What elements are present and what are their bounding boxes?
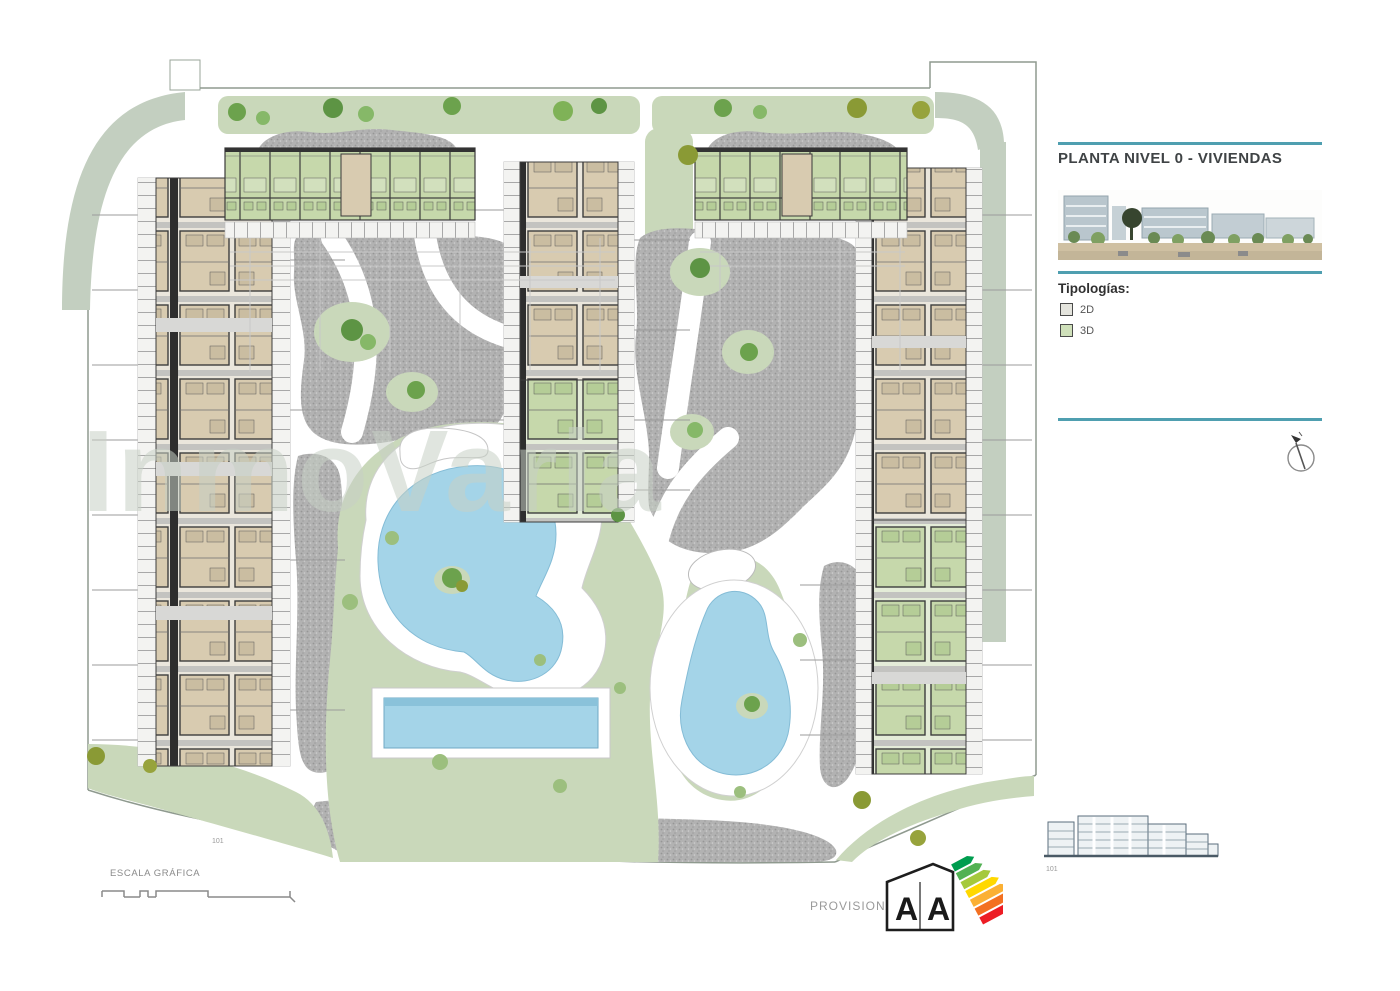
elevation-drawing [1042, 804, 1222, 864]
energy-letter-right: A [927, 891, 950, 927]
typologies-heading: Tipologías: [1058, 281, 1130, 296]
energy-rating-label: A A [873, 850, 1003, 938]
page: InmoVaria 101 PLANTA NIVEL 0 - VIVIENDAS… [0, 0, 1400, 991]
legend-item-3d: 3D [1060, 324, 1094, 337]
legend-rule-top [1058, 271, 1322, 274]
page-title: PLANTA NIVEL 0 - VIVIENDAS [1058, 150, 1338, 167]
title-rule-top [1058, 142, 1322, 145]
lap-pool [372, 688, 610, 758]
legend-label-3d: 3D [1080, 325, 1094, 337]
legend-swatch-2d [1060, 303, 1073, 316]
legend-swatch-3d [1060, 324, 1073, 337]
elevation-ref-number: 101 [1046, 866, 1058, 873]
site-plan [0, 0, 1040, 991]
scale-bar [100, 884, 300, 906]
plan-ref-number: 101 [212, 838, 224, 845]
north-arrow-compass-icon [1278, 430, 1322, 480]
legend-label-2d: 2D [1080, 304, 1094, 316]
second-pool [650, 580, 818, 796]
legend-rule-bottom [1058, 418, 1322, 421]
energy-letter-left: A [895, 891, 918, 927]
project-rendering-thumbnail [1058, 190, 1322, 260]
scale-bar-label: ESCALA GRÁFICA [110, 868, 200, 879]
legend-item-2d: 2D [1060, 303, 1094, 316]
